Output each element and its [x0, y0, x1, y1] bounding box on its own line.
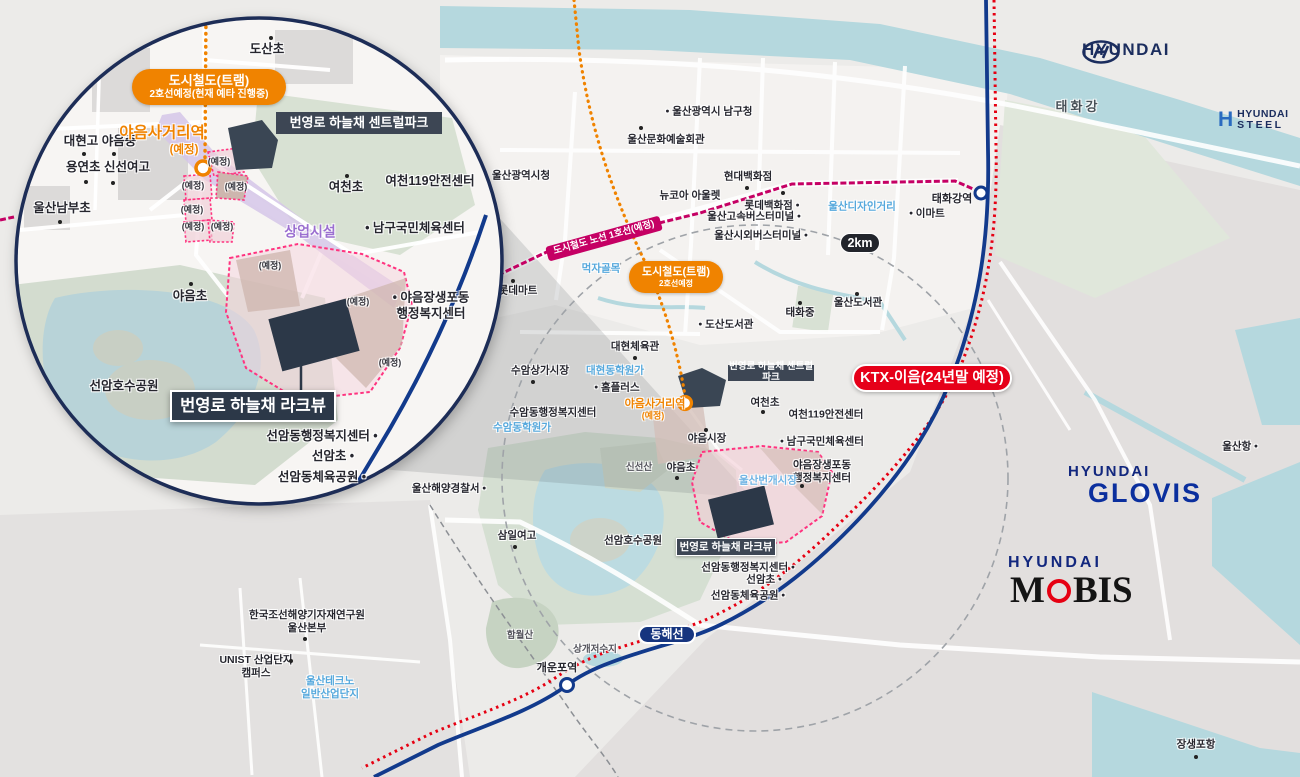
- map-label: 여천초: [329, 180, 364, 196]
- map-label: 울산남부초: [33, 201, 91, 217]
- map-label: • 야음장생포동 행정복지센터: [393, 290, 470, 321]
- map-dot: [345, 174, 349, 178]
- hyundai-mobis-logo: HYUNDAI MBIS: [1008, 554, 1133, 609]
- hyundai-logo: HYUNDAI: [1082, 40, 1170, 60]
- map-dot: [111, 181, 115, 185]
- map-label: 용연초 신선여고: [66, 160, 150, 176]
- map-label: (예정): [181, 204, 204, 215]
- hyundai-glovis-logo: HYUNDAI GLOVIS: [1068, 463, 1202, 507]
- map-label: (예정): [170, 143, 199, 157]
- map-label: 야음초: [173, 289, 208, 305]
- map-dot: [112, 152, 116, 156]
- ulsan-location-map: 울산광역시청• 울산광역시 남구청울산문화예술회관울산디자인거리현대백화점뉴코아…: [0, 0, 1300, 777]
- mobis-o-icon: [1047, 579, 1071, 603]
- centralpark-inset-badge: 번영로 하늘채 센트럴파크: [276, 112, 442, 134]
- map-label: (예정): [347, 296, 370, 307]
- map-label: 선암동행정복지센터 •: [266, 429, 377, 445]
- map-label: 상업시설: [284, 223, 336, 241]
- inset-label-layer: 도산초대현고 야음중용연초 신선여고울산남부초야음사거리역(예정)여천초여천11…: [0, 0, 1300, 777]
- hyundai-steel-logo: H HYUNDAI STEEL: [1218, 108, 1289, 132]
- map-label: (예정): [208, 156, 231, 167]
- map-dot: [84, 180, 88, 184]
- map-label: 선암동체육공원 •: [278, 470, 366, 486]
- hyundai-h-icon: [1082, 40, 1120, 64]
- map-label: 여천119안전센터: [385, 174, 474, 190]
- map-label: 선암호수공원: [89, 379, 158, 395]
- map-label: (예정): [379, 357, 402, 368]
- map-label: (예정): [211, 221, 234, 232]
- tram-line2-inset-badge: 도시철도(트램) 2호선예정(현재 예타 진행중): [132, 69, 286, 105]
- map-label: • 남구국민체육센터: [365, 221, 465, 237]
- lakeview-inset-badge: 번영로 하늘채 라크뷰: [170, 390, 336, 422]
- map-label: (예정): [182, 180, 205, 191]
- map-label: (예정): [182, 221, 205, 232]
- map-label: 야음사거리역: [119, 123, 205, 142]
- map-label: 선암초 •: [312, 449, 354, 465]
- hyundai-steel-h-icon: H: [1218, 108, 1233, 132]
- map-dot: [269, 36, 273, 40]
- map-label: 도산초: [250, 42, 285, 58]
- map-label: (예정): [225, 181, 248, 192]
- map-dot: [82, 152, 86, 156]
- map-dot: [189, 282, 193, 286]
- map-dot: [58, 220, 62, 224]
- map-label: (예정): [259, 260, 282, 271]
